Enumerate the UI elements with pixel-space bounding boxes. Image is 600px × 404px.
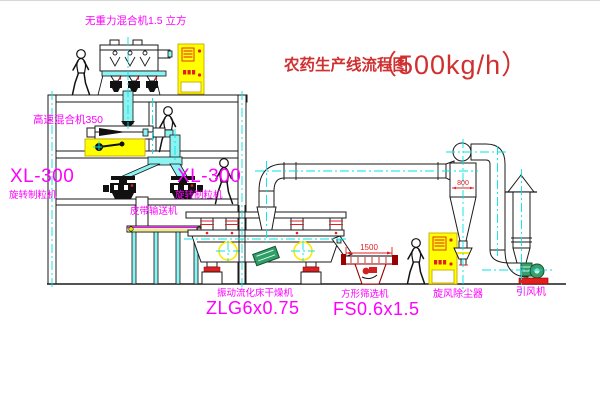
sieve-motor: [363, 268, 370, 275]
label-granulator-right-model: XL-300: [177, 166, 241, 187]
label-granulator-left-model: XL-300: [10, 166, 74, 187]
label-granulator-right-name: 旋转制粒机: [175, 189, 223, 201]
second-floor-slab: [56, 151, 238, 158]
induced-draft-fan: [519, 263, 548, 284]
fluid-bed-dryer: [188, 230, 344, 284]
dimension-cyclone-diameter: 800: [457, 180, 469, 187]
square-sieve: [341, 247, 398, 284]
drawing-title-capacity: （500kg/h）: [370, 50, 529, 80]
exhaust-stack: [505, 175, 537, 263]
indicator-light: [449, 238, 452, 241]
label-sieve-model: FS0.6x1.5: [333, 299, 420, 319]
worker-figure-roof: [73, 50, 90, 95]
worker-figure-ground: [408, 239, 425, 284]
stack-rain-cap: [508, 175, 534, 192]
gravity-free-mixer: [98, 40, 172, 95]
indicator-light: [198, 49, 201, 52]
granulator-left: [103, 176, 136, 199]
label-gravity-free-mixer: 无重力混合机1.5 立方: [85, 14, 187, 27]
cad-drawing-canvas: 无重力混合机1.5 立方 高速混合机350 XL-300 旋转制粒机 XL-30…: [0, 0, 600, 404]
roof-slab: [48, 95, 247, 102]
discharge-valves: [110, 76, 158, 92]
label-belt-conveyor: 皮带输送机: [130, 205, 178, 217]
fan-base: [519, 278, 548, 284]
label-draft-fan: 引风机: [516, 285, 546, 298]
discharge-manifold: [102, 71, 166, 76]
process-flow-diagram: 无重力混合机1.5 立方 高速混合机350 XL-300 旋转制粒机 XL-30…: [0, 1, 600, 404]
label-granulator-left-name: 旋转制粒机: [9, 189, 57, 201]
label-cyclone: 旋风除尘器: [433, 287, 483, 300]
label-dryer-model: ZLG6x0.75: [206, 298, 300, 318]
mixer-motor-box: [85, 139, 145, 156]
dimension-sieve-width: 1500: [360, 243, 378, 252]
label-high-speed-mixer: 高速混合机350: [33, 113, 103, 126]
control-cabinet-bottom: [429, 233, 457, 284]
control-cabinet-top: [178, 44, 204, 94]
exhaust-duct: [257, 161, 454, 240]
